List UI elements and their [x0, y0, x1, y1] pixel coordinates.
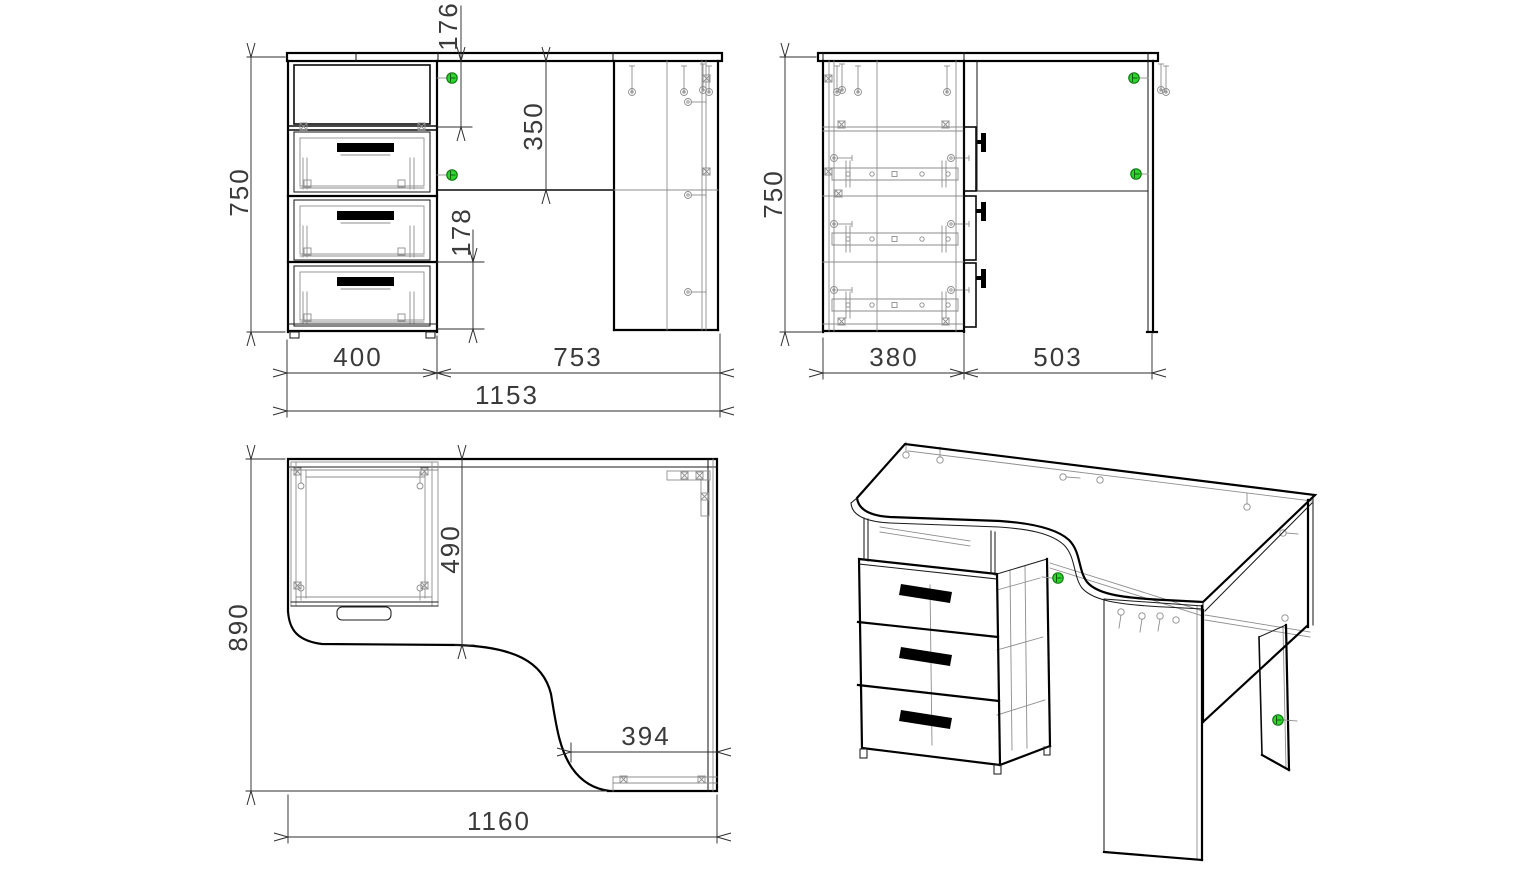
dim-front-right-span: 753	[553, 342, 602, 372]
cam-indicator-icon	[447, 170, 457, 180]
dim-front-cabinet-width: 400	[333, 342, 382, 372]
cam-indicator-icon	[1053, 573, 1063, 583]
dim-side-height: 750	[758, 169, 788, 218]
drawing-sheet: 750 176 350 178 400 753 1153	[0, 0, 1540, 872]
cam-indicator-icon	[447, 73, 457, 83]
dim-front-drawer-pitch: 178	[446, 207, 476, 256]
dim-side-cabinet-depth: 380	[869, 342, 918, 372]
cam-indicator-icon	[1131, 169, 1141, 179]
dim-plan-total-width: 1160	[467, 806, 531, 836]
dim-front-top-to-rail: 350	[518, 101, 548, 150]
cam-indicator-icon	[1273, 715, 1283, 725]
dim-front-height: 750	[224, 167, 254, 216]
dim-plan-depth: 890	[223, 602, 253, 651]
dim-front-opening: 176	[433, 1, 463, 50]
dim-front-total-width: 1153	[475, 380, 539, 410]
sheet-background	[0, 0, 1540, 872]
dim-plan-cutout: 490	[435, 524, 465, 573]
dim-side-open-depth: 503	[1033, 342, 1082, 372]
cam-indicator-icon	[1129, 73, 1139, 83]
cad-drawing: 750 176 350 178 400 753 1153	[0, 0, 1540, 872]
dim-plan-front-segment: 394	[621, 721, 670, 751]
